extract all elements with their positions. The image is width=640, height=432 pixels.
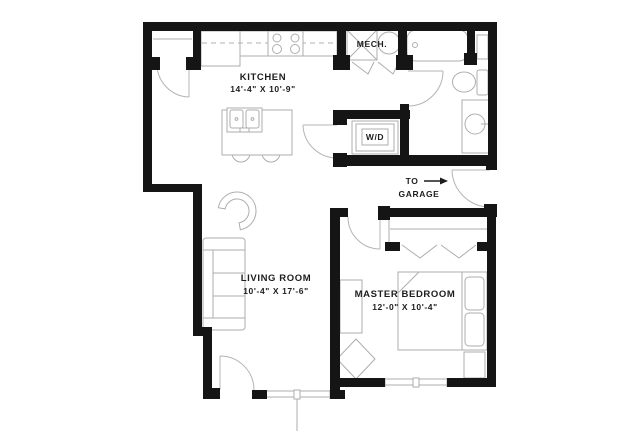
- wall-bottom-a: [252, 390, 267, 399]
- labels: KITCHEN 14'-4" X 10'-9" MECH. W/D LIVING…: [230, 39, 455, 312]
- to-garage-line1: TO: [406, 176, 419, 186]
- vanity-sink: [462, 100, 489, 153]
- living-room-window: [266, 390, 330, 399]
- mech-bifold-doors: [352, 62, 399, 74]
- closet-bifold-doors: [402, 245, 476, 258]
- wall-left-upper: [143, 22, 152, 191]
- toilet: [453, 70, 489, 95]
- to-garage-note: TO GARAGE: [399, 176, 448, 199]
- pantry-jamb-east: [186, 57, 201, 70]
- wall-right-lower: [487, 204, 496, 387]
- refrigerator: [201, 31, 240, 66]
- mech-label: MECH.: [357, 39, 387, 49]
- window-mullion: [413, 378, 419, 387]
- wall-bottom-corner: [203, 388, 220, 399]
- bedroom-door-swing: [348, 217, 380, 249]
- wall-bedroom-top-east: [378, 208, 497, 217]
- dresser: [340, 280, 362, 333]
- kitchen-fixtures: [153, 31, 337, 162]
- pantry-door-swing: [157, 64, 189, 97]
- tub-linen-stub: [464, 53, 477, 65]
- living-room-label: LIVING ROOM: [241, 273, 311, 284]
- master-bedroom-label: MASTER BEDROOM: [355, 289, 456, 300]
- wall-right-upper: [488, 22, 497, 170]
- armchair: [218, 192, 256, 230]
- garage-arrow-icon: [424, 178, 448, 185]
- window-mullion: [294, 390, 300, 399]
- kitchen-island: [222, 108, 292, 162]
- closet-stub-west: [385, 242, 400, 251]
- bathtub: [407, 30, 468, 61]
- living-room-dimensions: 10'-4" X 17'-6": [243, 286, 309, 296]
- floor-plan: KITCHEN 14'-4" X 10'-9" MECH. W/D LIVING…: [0, 0, 640, 432]
- bathroom-door-swing: [408, 71, 443, 106]
- entry-door-swing: [220, 356, 254, 390]
- floor-plan-drawing: KITCHEN 14'-4" X 10'-9" MECH. W/D LIVING…: [0, 0, 640, 432]
- to-garage-line2: GARAGE: [399, 189, 440, 199]
- laundry-door-swing: [303, 125, 337, 158]
- accent-chair: [337, 339, 375, 379]
- kitchen-dimensions: 14'-4" X 10'-9": [230, 84, 296, 94]
- wall-left-mid: [193, 184, 202, 335]
- nightstand: [464, 352, 485, 378]
- laundry-jamb-north: [333, 110, 347, 125]
- pantry-jamb-west: [143, 57, 160, 70]
- kitchen-label: KITCHEN: [240, 72, 286, 83]
- pillow: [465, 277, 484, 310]
- stove: [268, 31, 303, 56]
- wall-hall-top: [333, 155, 497, 166]
- wall-pantry-east: [193, 22, 201, 63]
- mech-jamb-west: [333, 55, 350, 70]
- bedroom-window: [385, 378, 447, 387]
- laundry-label: W/D: [366, 132, 384, 142]
- wall-jog: [143, 184, 200, 192]
- wall-bedroom-bottom-a: [336, 378, 385, 387]
- closet-stub-east: [477, 242, 491, 251]
- wall-living-bedroom: [330, 208, 340, 399]
- bedroom-door-jamb: [378, 206, 390, 220]
- garage-door-swing: [452, 170, 490, 207]
- wall-bath-west: [400, 104, 409, 159]
- linen-closet: [477, 35, 488, 59]
- mech-jamb-east: [396, 55, 413, 70]
- island-double-sink: [227, 108, 262, 132]
- wall-hall-end: [486, 155, 497, 170]
- bathroom-fixtures: [407, 30, 489, 153]
- master-bedroom-dimensions: 12'-0" X 10'-4": [372, 302, 438, 312]
- pillow: [465, 313, 484, 346]
- sofa: [203, 238, 245, 330]
